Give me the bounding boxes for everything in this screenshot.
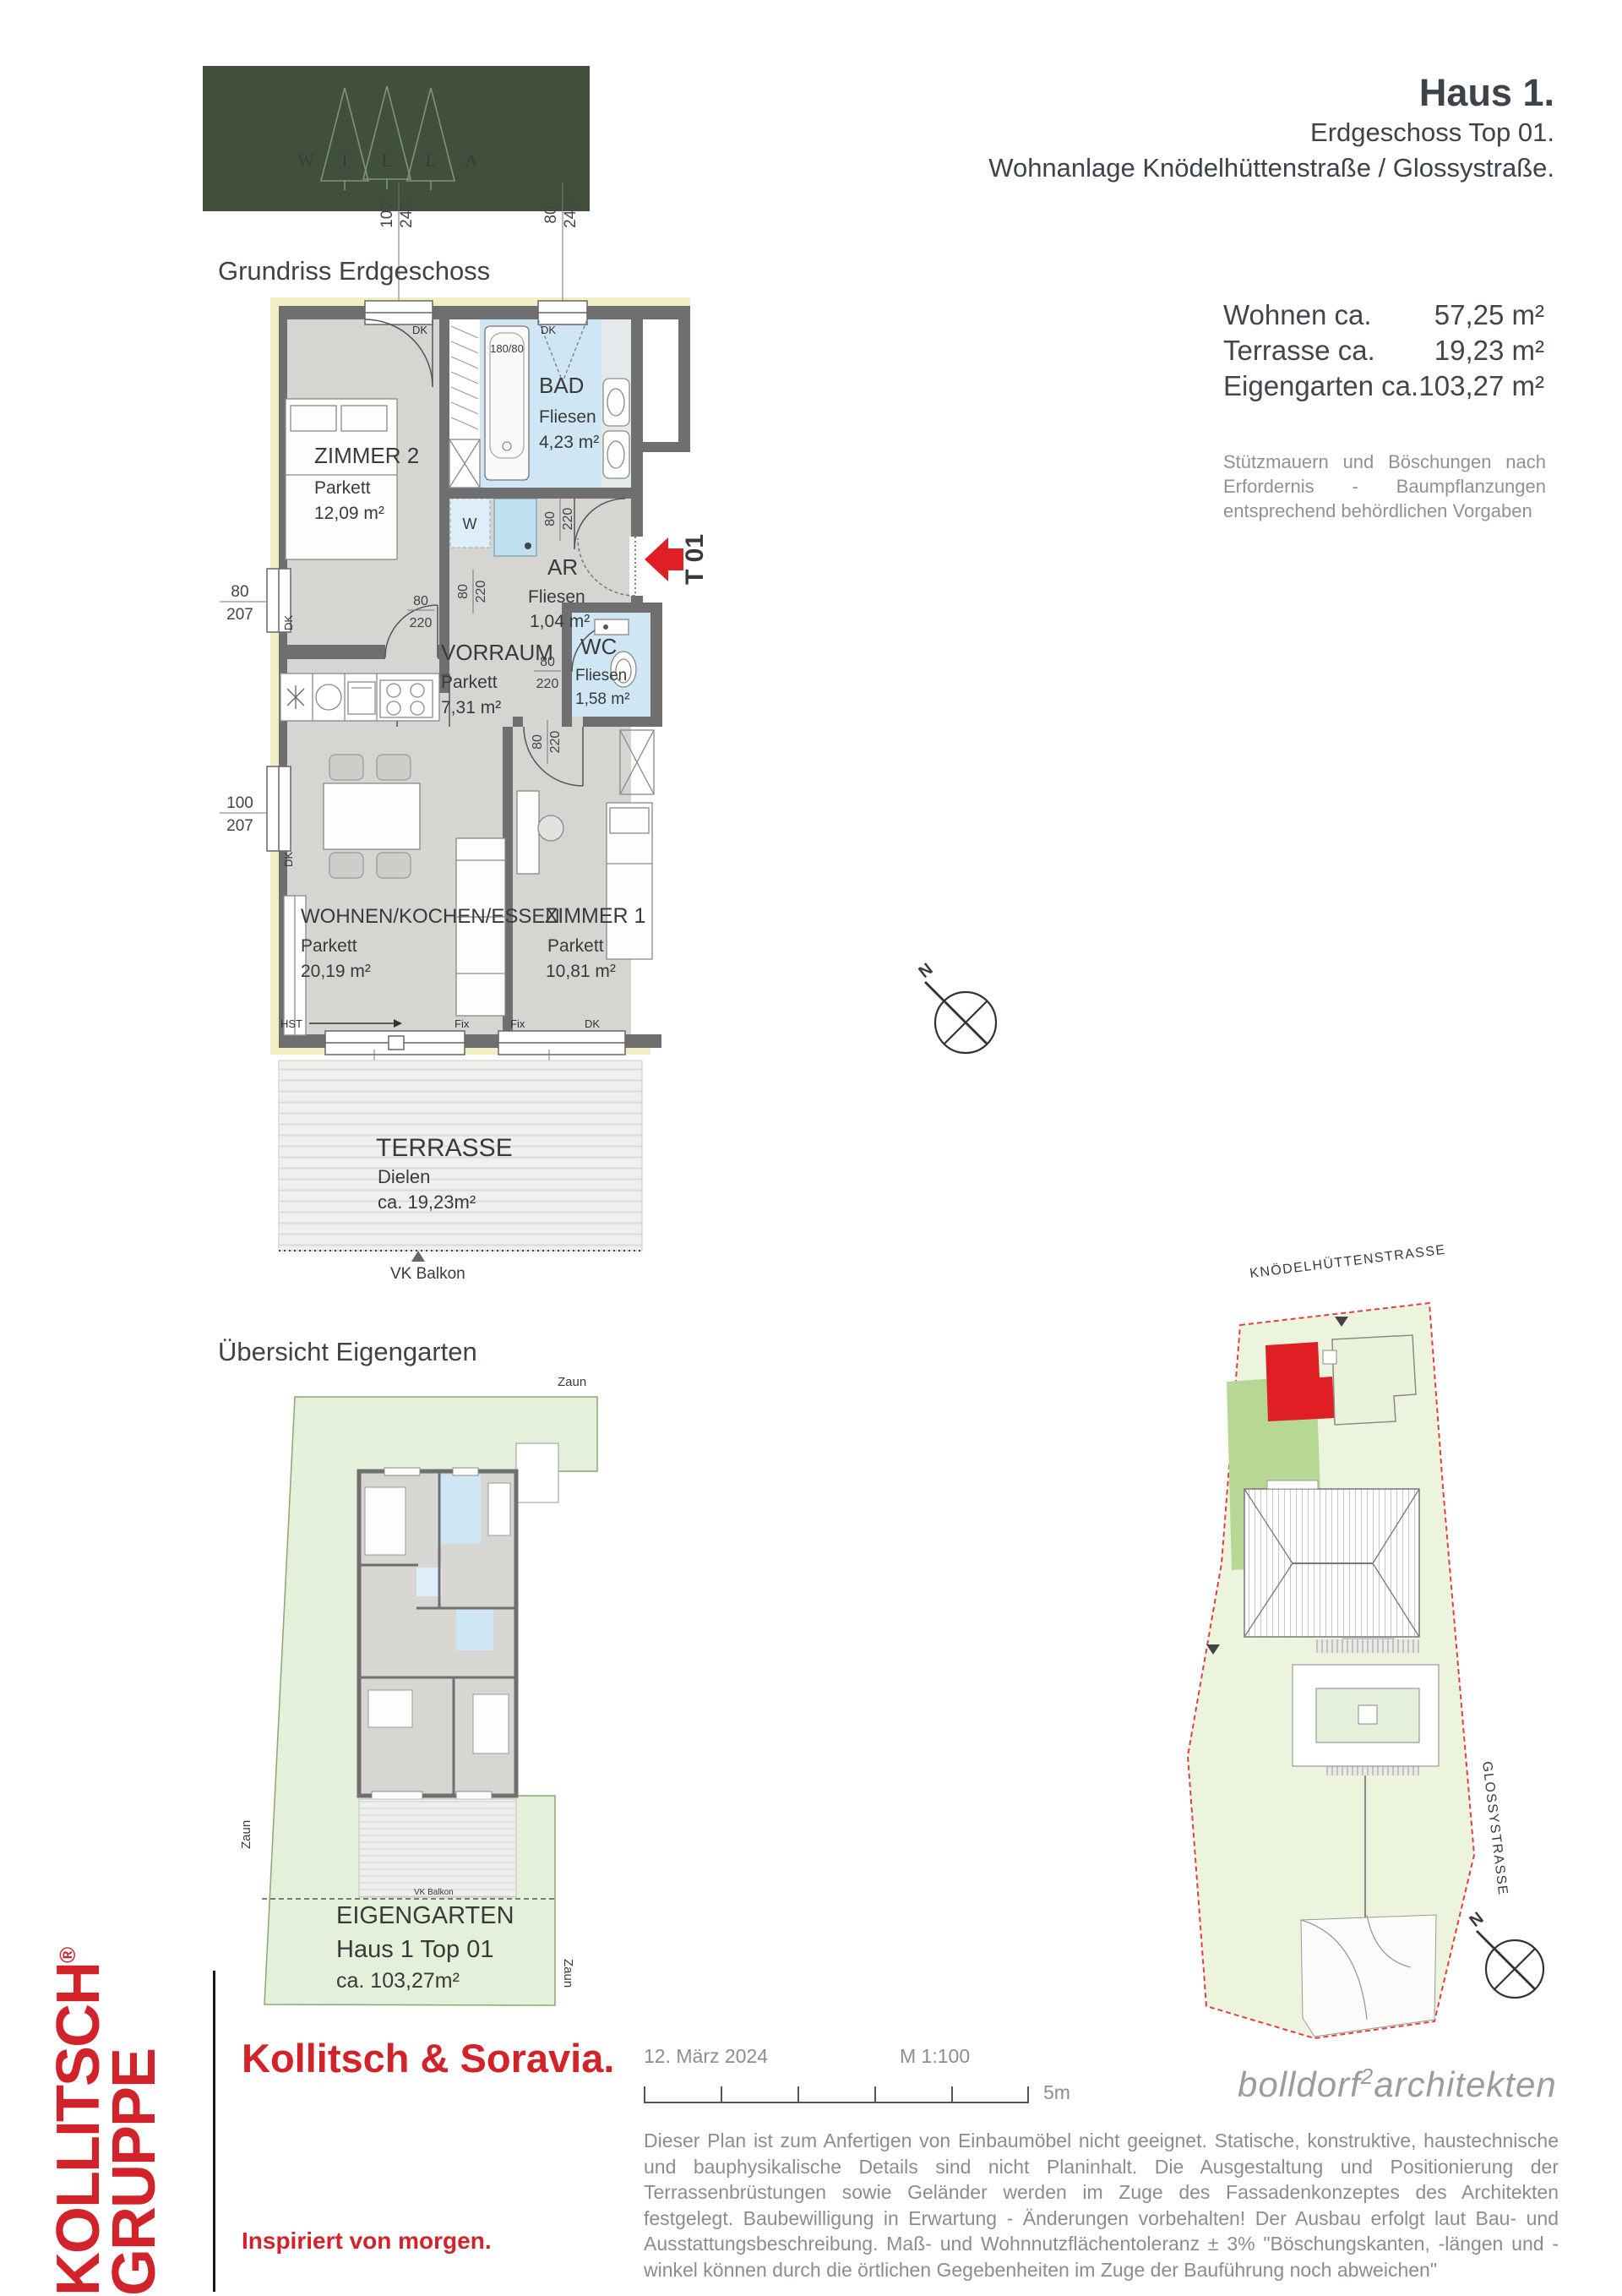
unit-number-label: T 01 (681, 534, 709, 585)
street-label-top: KNÖDELHÜTTENSTRASSE (1249, 1242, 1446, 1281)
area-row-wohnen: Wohnen ca. 57,25 m² (1223, 297, 1544, 333)
area-label: Wohnen ca. (1223, 297, 1372, 333)
north-label: N (1467, 1909, 1488, 1931)
vk-balkon-mini-label: VK Balkon (414, 1888, 454, 1897)
plan-sheet: { "header":{ "logo_letters":["W","I","L"… (0, 0, 1622, 2295)
registered-mark: ® (55, 1949, 80, 1963)
dk-mark: DK (412, 324, 427, 336)
door-dim: 220 (474, 581, 488, 603)
room-ar-floor: Fliesen (528, 587, 585, 607)
floorplan-section-title: Grundriss Erdgeschoss (218, 256, 490, 286)
door-dim: 220 (536, 677, 559, 691)
garden-section-title: Übersicht Eigengarten (218, 1337, 477, 1367)
architect-suffix: architekten (1374, 2064, 1556, 2104)
page-subtitle-floor: Erdgeschoss Top 01. (988, 115, 1554, 150)
brand-wordmark: Kollitsch & Soravia. (242, 2035, 614, 2081)
room-wohnen-area: 20,19 m² (301, 962, 371, 981)
dim-window-top2-n: 80 (542, 205, 560, 223)
area-table: Wohnen ca. 57,25 m² Terrasse ca. 19,23 m… (1223, 297, 1544, 404)
middle-building (1244, 1481, 1419, 1647)
kollitsch-logo: KOLLITSCH® GRUPPE (51, 1965, 210, 2296)
architect-sup: 2 (1361, 2064, 1374, 2089)
dk-mark: DK (541, 324, 556, 336)
room-terrasse-name: TERRASSE (376, 1134, 513, 1162)
unit-entry-arrow: T 01 (645, 534, 709, 585)
plan-date: 12. März 2024 (644, 2045, 768, 2068)
mini-terrace (359, 1799, 516, 1897)
room-zimmer1-name: ZIMMER 1 (545, 904, 645, 928)
footer-divider (213, 1971, 215, 2292)
house1-detail (1323, 1350, 1336, 1364)
hst-mark: HST (280, 1017, 302, 1030)
plan-scale: M 1:100 (900, 2045, 970, 2068)
room-vorraum-area: 7,31 m² (441, 698, 501, 717)
room-ar-area: 1,04 m² (530, 612, 590, 631)
room-terrasse-floor: Dielen (378, 1166, 430, 1187)
dk-mark: DK (282, 615, 295, 630)
room-zimmer2-floor: Parkett (314, 478, 371, 498)
room-wc-floor: Fliesen (575, 667, 627, 684)
site-compass-icon: N (1467, 1909, 1543, 1998)
vk-balkon-marker (411, 1251, 425, 1262)
bottom-roads (1301, 1915, 1436, 2037)
room-zimmer2-name: ZIMMER 2 (314, 443, 419, 468)
page-subtitle-project: Wohnanlage Knödelhüttenstraße / Glossyst… (988, 150, 1554, 186)
dim-window-left1-n: 80 (231, 583, 248, 601)
door-dim: 220 (548, 731, 563, 754)
vk-balkon-label: VK Balkon (390, 1265, 465, 1283)
north-compass-icon: N (916, 960, 996, 1053)
door-dim: 220 (410, 616, 433, 630)
dim-window-top1-d: 243 (398, 201, 416, 228)
title-block: Haus 1. Erdgeschoss Top 01. Wohnanlage K… (988, 71, 1554, 185)
architect-name: bolldorf (1238, 2064, 1361, 2104)
door-dim: 220 (561, 508, 575, 531)
room-wohnen-floor: Parkett (301, 936, 357, 956)
fix-mark: Fix (510, 1017, 525, 1030)
fence-label-left: Zaun (239, 1820, 253, 1849)
room-zimmer2-area: 12,09 m² (314, 504, 384, 523)
dim-window-top2-d: 243 (562, 201, 580, 228)
door-dim: 80 (531, 734, 545, 750)
dk-mark: DK (282, 852, 295, 867)
plan-disclaimer: Dieser Plan ist zum Anfertigen von Einba… (644, 2128, 1559, 2282)
scale-bar (644, 2085, 1029, 2103)
door-dim: 80 (543, 511, 558, 526)
dim-window-top1-n: 100 (378, 201, 396, 228)
door-dim: 80 (456, 584, 471, 599)
site-plan-drawing: KNÖDELHÜTTENSTRASSE GLOSSYSTRASSE N (1157, 1225, 1605, 2070)
fix-mark: Fix (454, 1017, 470, 1030)
room-wc-name: WC (580, 634, 617, 659)
dim-window-left1-d: 207 (226, 606, 253, 624)
north-label: N (916, 960, 937, 982)
lower-building (1293, 1665, 1439, 1766)
fence-label-top: Zaun (558, 1375, 586, 1389)
brand-slogan: Inspiriert von morgen. (242, 2228, 492, 2255)
door-dim: 80 (413, 594, 428, 608)
kollitsch-logo-line2: GRUPPE (106, 1965, 162, 2296)
architect-wordmark: bolldorf2architekten (1238, 2064, 1557, 2105)
floor-plan-drawing: 100 243 80 243 80 207 100 207 350 243 16… (203, 152, 980, 1301)
room-zimmer1-floor: Parkett (547, 936, 604, 956)
street-label-right: GLOSSYSTRASSE (1479, 1760, 1510, 1896)
area-label: Eigengarten ca. (1223, 368, 1418, 404)
room-zimmer1-area: 10,81 m² (546, 962, 616, 981)
area-value: 103,27 m² (1418, 368, 1544, 404)
mini-floorplan (359, 1468, 516, 1897)
fence-label-right: Zaun (561, 1959, 575, 1988)
area-row-terrasse: Terrasse ca. 19,23 m² (1223, 333, 1544, 368)
room-bad-area: 4,23 m² (539, 433, 599, 452)
room-wohnen-name: WOHNEN/KOCHEN/ESSEN (301, 905, 560, 928)
room-ar-name: AR (547, 554, 578, 580)
room-bad-name: BAD (539, 373, 584, 398)
garden-unit-label: Haus 1 Top 01 (336, 1936, 494, 1963)
garden-overview-drawing: VK Balkon Zaun Zaun Zaun EIGENGARTEN Hau… (203, 1318, 676, 2045)
garden-label: EIGENGARTEN (336, 1902, 514, 1929)
dim-window-left2-d: 207 (226, 817, 253, 835)
room-terrasse-area: ca. 19,23m² (378, 1192, 476, 1213)
room-wc-area: 1,58 m² (575, 690, 629, 708)
room-vorraum-name: VORRAUM (441, 640, 553, 665)
area-value: 57,25 m² (1434, 297, 1544, 333)
scale-bar-length: 5m (1043, 2081, 1070, 2104)
adjacent-structure (516, 1443, 558, 1502)
area-row-eigengarten: Eigengarten ca. 103,27 m² (1223, 368, 1544, 404)
dim-window-left2-n: 100 (226, 794, 253, 812)
room-bad-floor: Fliesen (539, 407, 596, 427)
page-title: Haus 1. (988, 71, 1554, 115)
room-vorraum-floor: Parkett (441, 673, 498, 692)
area-label: Terrasse ca. (1223, 333, 1375, 368)
dk-mark: DK (585, 1017, 600, 1030)
site-note: Stützmauern und Böschungen nach Erforder… (1223, 450, 1546, 523)
walkway (1316, 1639, 1419, 1653)
area-value: 19,23 m² (1434, 333, 1544, 368)
washer-mark: W (463, 515, 477, 532)
terrace: TERRASSE Dielen ca. 19,23m² VK Balkon (279, 1061, 642, 1283)
garden-area-label: ca. 103,27m² (336, 1969, 460, 1993)
tub-dim: 180/80 (490, 342, 524, 355)
